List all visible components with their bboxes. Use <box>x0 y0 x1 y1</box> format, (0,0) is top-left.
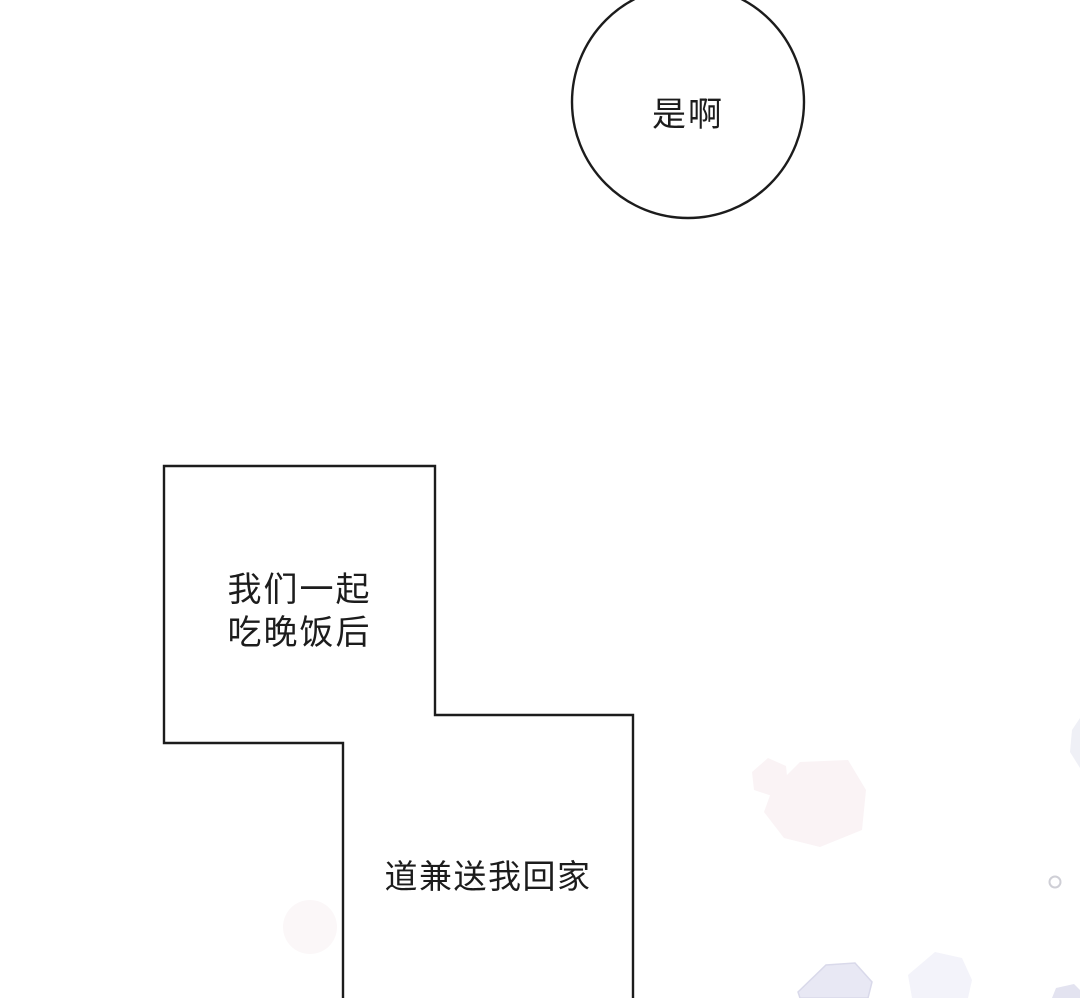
stepped-speech-bubble-outline <box>164 466 633 998</box>
sparkle-hexagon-decoration <box>798 963 872 998</box>
comic-page: 是啊 我们一起 吃晚饭后 道兼送我回家 <box>0 0 1080 998</box>
edge-sparkle-top-decoration <box>1070 718 1080 768</box>
circle-bubble-text: 是啊 <box>573 96 803 134</box>
upper-bubble-text-line-2: 吃晚饭后 <box>164 612 435 655</box>
sparkle-hexagon-faint-decoration <box>908 952 972 998</box>
blush-blob-faint-decoration <box>283 900 337 954</box>
lower-bubble-text: 道兼送我回家 <box>343 858 633 896</box>
upper-bubble-text: 我们一起 吃晚饭后 <box>164 569 435 655</box>
panel-artwork <box>0 0 1080 998</box>
upper-bubble-text-line-1: 我们一起 <box>164 569 435 612</box>
edge-sparkle-bottom-decoration <box>1052 984 1080 998</box>
tiny-sparkle-ring-decoration <box>1050 877 1061 888</box>
